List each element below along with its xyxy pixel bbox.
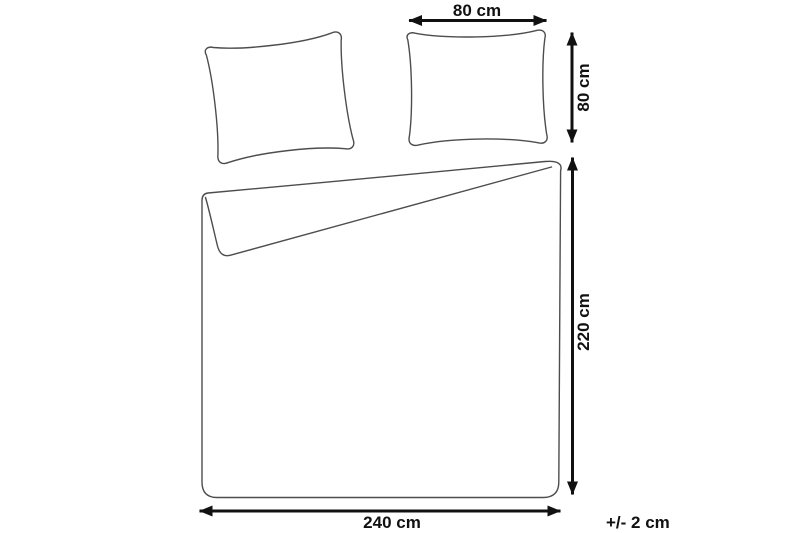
duvet-width-label: 240 cm	[363, 513, 421, 532]
duvet-height-label: 220 cm	[574, 293, 593, 351]
pillow-left-outline	[205, 31, 355, 164]
bedding-dimensions-page: 80 cm 80 cm 220 cm 240 cm +/- 2 cm	[0, 0, 800, 533]
pillow-height-label: 80 cm	[574, 63, 593, 111]
tolerance-label: +/- 2 cm	[606, 513, 670, 532]
pillow-right-outline	[407, 30, 547, 146]
duvet-cover-outline	[202, 161, 561, 497]
bedding-dimensions-diagram: 80 cm 80 cm 220 cm 240 cm +/- 2 cm	[0, 0, 800, 533]
pillow-width-label: 80 cm	[453, 1, 501, 20]
